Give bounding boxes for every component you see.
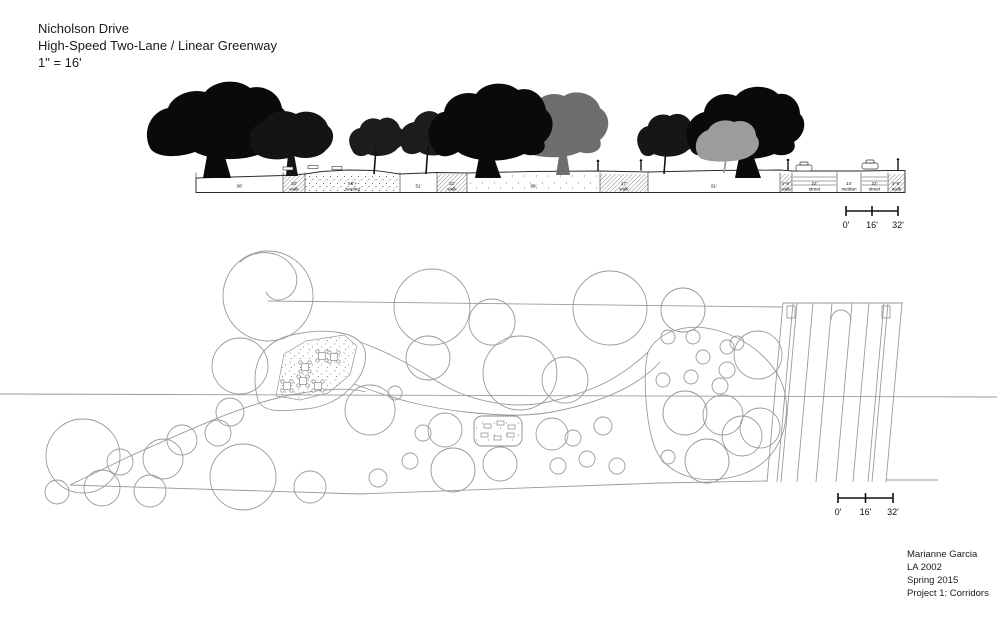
plan-tree-canopy bbox=[406, 336, 450, 380]
bench-symbol bbox=[283, 167, 293, 170]
credit-project: Project 1: Corridors bbox=[907, 587, 989, 600]
credit-course: LA 2002 bbox=[907, 561, 989, 574]
table-top bbox=[284, 383, 291, 390]
table-seat bbox=[328, 351, 331, 354]
plan-tree-canopy bbox=[550, 458, 566, 474]
canopy-inner-curve bbox=[240, 253, 297, 300]
plan-road-edge-line-top bbox=[268, 301, 783, 307]
band-label: 91' bbox=[711, 184, 717, 189]
band-sublabel: walk bbox=[892, 187, 902, 192]
table-seat bbox=[321, 380, 324, 383]
band-label: 4'-6" bbox=[781, 181, 791, 186]
table-seat bbox=[321, 389, 324, 392]
table-seat bbox=[316, 350, 319, 353]
seating-pod-outline bbox=[474, 416, 522, 446]
plan-tree-canopy bbox=[483, 447, 517, 481]
plan-tree-canopy bbox=[720, 340, 734, 354]
plan-road-edge-line-bottom bbox=[0, 394, 997, 397]
person-figure bbox=[597, 160, 600, 171]
plan-tree-canopy bbox=[579, 451, 595, 467]
plan-tree-canopy bbox=[431, 448, 475, 492]
table-seat bbox=[312, 380, 315, 383]
table-seat bbox=[306, 375, 309, 378]
table-top bbox=[315, 383, 322, 390]
elevation-section: 36'10'walk56'+seating51'22'walk88'17'wal… bbox=[147, 82, 905, 230]
table-seat bbox=[306, 384, 309, 387]
plan-tree-canopy bbox=[167, 425, 197, 455]
table-top bbox=[302, 364, 309, 371]
plan-tree-canopy bbox=[685, 439, 729, 483]
band-label: 4'-6" bbox=[892, 181, 902, 186]
pod-bench bbox=[508, 425, 515, 429]
plan-tree-canopy bbox=[663, 391, 707, 435]
bench-symbol bbox=[308, 166, 318, 169]
band-sublabel: walk bbox=[781, 187, 791, 192]
plan-tree-canopy bbox=[712, 378, 728, 394]
table-seat bbox=[312, 389, 315, 392]
plan-tree-canopy bbox=[609, 458, 625, 474]
median-nose-arc bbox=[831, 310, 851, 320]
plan-tree-canopy bbox=[573, 271, 647, 345]
band-label: 10' bbox=[291, 181, 297, 186]
band-sublabel: median bbox=[841, 187, 857, 192]
pod-bench bbox=[494, 436, 501, 440]
pod-bench bbox=[507, 433, 514, 437]
band-label: 36' bbox=[237, 184, 243, 189]
band-label: 22' bbox=[812, 181, 818, 186]
scale-bar-label: 32' bbox=[892, 220, 904, 230]
bench-symbol bbox=[332, 167, 342, 170]
band-label: 51' bbox=[416, 184, 422, 189]
plan-tree-canopy bbox=[205, 420, 231, 446]
band-sublabel: walk bbox=[289, 187, 299, 192]
person-figure bbox=[640, 159, 643, 170]
credit-block: Marianne Garcia LA 2002 Spring 2015 Proj… bbox=[907, 548, 989, 600]
oak-tree-silhouette bbox=[429, 84, 553, 161]
person-figure bbox=[787, 159, 790, 170]
scale-bar-top: 0'16'32' bbox=[843, 206, 905, 230]
scale-bar-label: 0' bbox=[843, 220, 850, 230]
table-top bbox=[300, 378, 307, 385]
scale-bar-label: 32' bbox=[887, 507, 899, 517]
plan-tree-canopy bbox=[143, 439, 183, 479]
table-top bbox=[331, 354, 338, 361]
dark-tree-trunk bbox=[286, 154, 298, 176]
plan-tree-canopy bbox=[394, 269, 470, 345]
pod-bench bbox=[484, 424, 491, 428]
parcel-bottom-edge bbox=[70, 481, 767, 494]
plan-tree-canopy bbox=[696, 350, 710, 364]
scale-bar-label: 16' bbox=[860, 507, 872, 517]
plan-tree-canopy bbox=[428, 413, 462, 447]
plan-tree-canopy bbox=[294, 471, 326, 503]
drawing-sheet: Nicholson Drive High-Speed Two-Lane / Li… bbox=[0, 0, 1000, 619]
band-sublabel: walk bbox=[447, 187, 457, 192]
lawn-area-outline bbox=[645, 327, 786, 479]
branchy-tree-silhouette bbox=[349, 118, 405, 157]
band-label: 88' bbox=[531, 184, 537, 189]
band-sublabel: walk bbox=[619, 187, 629, 192]
plan-tree-canopy bbox=[45, 480, 69, 504]
table-seat bbox=[316, 359, 319, 362]
plan-tree-canopy bbox=[686, 330, 700, 344]
plan-tree-canopies bbox=[45, 251, 782, 510]
table-seat bbox=[308, 370, 311, 373]
plan-tree-canopy bbox=[656, 373, 670, 387]
table-seat bbox=[281, 389, 284, 392]
table-seat bbox=[290, 380, 293, 383]
plan-tree-canopy bbox=[369, 469, 387, 487]
person-figure bbox=[897, 158, 900, 170]
table-seat bbox=[337, 360, 340, 363]
crosswalk-ramp bbox=[787, 306, 795, 318]
table-seat bbox=[297, 384, 300, 387]
table-seat bbox=[281, 380, 284, 383]
plan-tree-canopy bbox=[212, 338, 268, 394]
band-label: 17' bbox=[621, 181, 627, 186]
plan-tree-canopy bbox=[345, 385, 395, 435]
greenway-path-edge bbox=[128, 389, 366, 457]
band-sublabel: seating bbox=[345, 187, 360, 192]
plan-tree-canopy bbox=[661, 288, 705, 332]
plan-tree-canopy bbox=[536, 418, 568, 450]
table-seat bbox=[299, 361, 302, 364]
table-seat bbox=[290, 389, 293, 392]
scale-bar-label: 0' bbox=[835, 507, 842, 517]
drawing-canvas: 36'10'walk56'+seating51'22'walk88'17'wal… bbox=[0, 0, 1000, 619]
pod-bench bbox=[481, 433, 488, 437]
plan-tree-canopy bbox=[134, 475, 166, 507]
band-label: 22' bbox=[449, 181, 455, 186]
plan-view: 0'16'32' bbox=[0, 251, 997, 517]
seating-planting-bed bbox=[276, 335, 357, 400]
band-sublabel: street bbox=[809, 187, 821, 192]
credit-term: Spring 2015 bbox=[907, 574, 989, 587]
table-seat bbox=[337, 351, 340, 354]
table-seat bbox=[308, 361, 311, 364]
table-seat bbox=[328, 360, 331, 363]
band-label: 22' bbox=[872, 181, 878, 186]
band-label: 56'+ bbox=[348, 181, 357, 186]
plan-tree-canopy bbox=[719, 362, 735, 378]
vehicle-symbol bbox=[796, 162, 812, 171]
street-crossing bbox=[767, 303, 903, 482]
table-seat bbox=[299, 370, 302, 373]
plan-tree-canopy bbox=[661, 330, 675, 344]
table-seat bbox=[297, 375, 300, 378]
elevation-trees bbox=[147, 82, 804, 178]
plan-tree-canopy bbox=[483, 336, 557, 410]
plan-tree-canopy bbox=[594, 417, 612, 435]
plan-tree-canopy bbox=[684, 370, 698, 384]
plan-tree-canopy bbox=[210, 444, 276, 510]
plan-tree-canopy bbox=[223, 251, 313, 341]
scale-bar-bottom: 0'16'32' bbox=[835, 493, 900, 517]
plan-tree-canopy bbox=[216, 398, 244, 426]
table-top bbox=[319, 353, 326, 360]
vehicle-symbol bbox=[862, 160, 878, 169]
pod-bench bbox=[497, 421, 504, 425]
band-label: 14' bbox=[846, 181, 852, 186]
band-sublabel: street bbox=[869, 187, 881, 192]
plan-tree-canopy bbox=[402, 453, 418, 469]
scale-bar-label: 16' bbox=[866, 220, 878, 230]
plan-tree-canopy bbox=[661, 450, 675, 464]
plan-tree-canopy bbox=[734, 331, 782, 379]
credit-author: Marianne Garcia bbox=[907, 548, 989, 561]
